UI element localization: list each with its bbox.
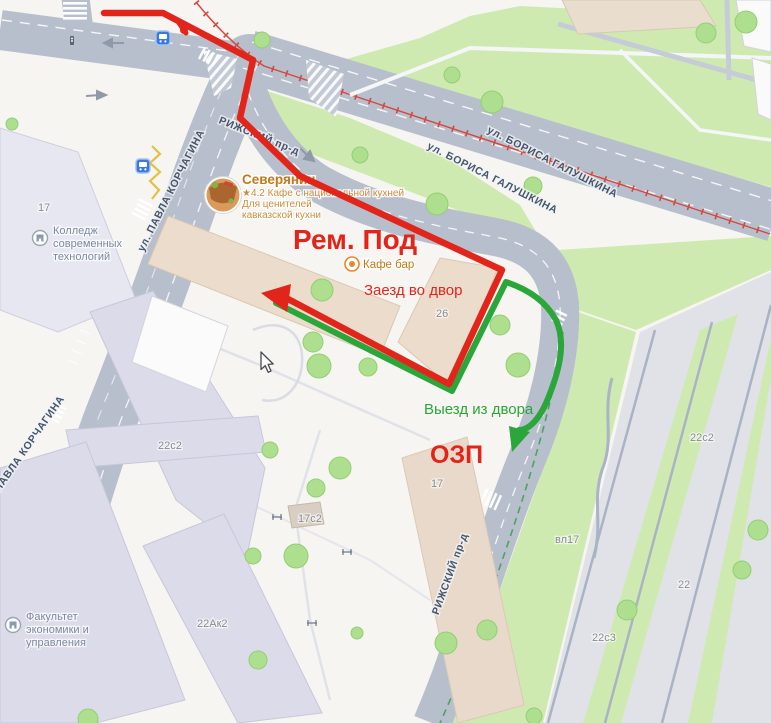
overlay-title: Рем. Под: [293, 224, 417, 255]
faculty-label-3: управления: [26, 637, 86, 649]
cafe-bar-icon-cup: [349, 261, 355, 267]
cafe-tagline-2: кавказской кухни: [242, 210, 321, 221]
faculty-icon: [6, 618, 21, 633]
college-label-2: современных: [53, 238, 123, 250]
building-label-22ak2: 22Ак2: [197, 618, 228, 630]
poi-cafe-bar[interactable]: Кафе бар: [345, 257, 414, 271]
college-label-1: Колледж: [53, 225, 98, 237]
map-canvas[interactable]: ул. БОРИСА ГАЛУШКИНА ул. БОРИСА ГАЛУШКИН…: [0, 0, 771, 723]
faculty-label-2: экономики и: [26, 624, 89, 636]
building-label-22c3: 22с3: [592, 632, 616, 644]
faculty-label-1: Факультет: [26, 611, 78, 623]
overlay-exit-label: Выезд из двора: [424, 401, 534, 418]
building-label-22: 22: [678, 579, 690, 591]
building-label-vl17: вл17: [555, 534, 579, 546]
map-viewport[interactable]: ул. БОРИСА ГАЛУШКИНА ул. БОРИСА ГАЛУШКИН…: [0, 0, 771, 723]
building-label-22c2-right: 22с2: [690, 432, 714, 444]
college-label-3: технологий: [53, 251, 110, 263]
overlay-ozp-label: ОЗП: [430, 441, 483, 469]
building-label-17c2: 17с2: [298, 513, 322, 525]
building-label-17-ozp: 17: [431, 478, 443, 490]
cafe-bar-label[interactable]: Кафе бар: [363, 259, 414, 271]
bus-stop-icon[interactable]: [136, 159, 150, 173]
building-label-26: 26: [436, 308, 448, 320]
traffic-light-icon: [70, 36, 74, 45]
bus-stop-icon[interactable]: [156, 31, 170, 45]
building-label-17: 17: [38, 202, 50, 214]
college-icon: [33, 231, 48, 246]
cafe-photo-avatar[interactable]: [205, 177, 242, 214]
building-label-22c2-left: 22с2: [158, 440, 182, 452]
cafe-tagline-1: Для ценителей: [242, 199, 312, 210]
overlay-entry-label: Заезд во двор: [364, 282, 462, 299]
